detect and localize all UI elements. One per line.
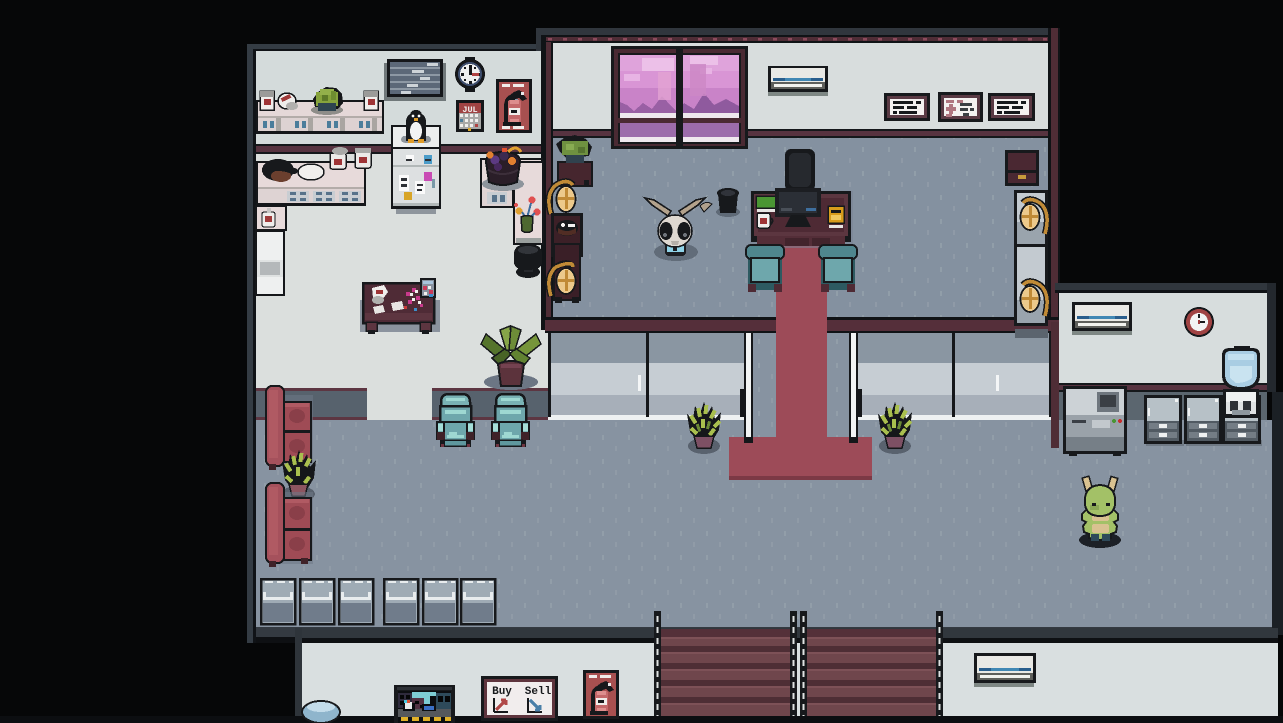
svg-text:Sell: Sell bbox=[525, 686, 552, 698]
svg-text:Buy: Buy bbox=[492, 686, 512, 698]
